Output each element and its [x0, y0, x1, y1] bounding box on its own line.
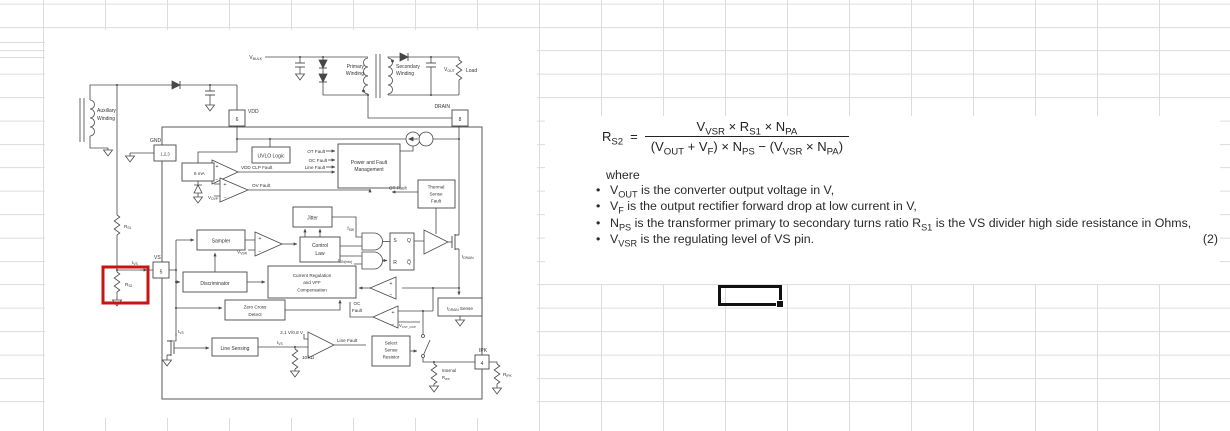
- block-control-law: [300, 237, 340, 262]
- embedded-diagram-image[interactable]: VBULK Primary Winding Secondary Winding …: [45, 30, 537, 418]
- svg-text:Winding: Winding: [346, 71, 364, 77]
- svg-text:Compensation: Compensation: [297, 288, 327, 293]
- svg-text:Sense: Sense: [429, 192, 442, 197]
- label-control: Control: [312, 243, 328, 249]
- label-idrain: IDRAIN: [462, 254, 474, 260]
- svg-text:Fault: Fault: [431, 199, 442, 204]
- svg-text:−: −: [259, 249, 262, 255]
- label-vdd: VDD: [248, 109, 259, 115]
- label-gnd: GND: [150, 138, 162, 144]
- label-pin123: 1,2,3: [160, 151, 170, 156]
- label-ipk: IPK: [479, 348, 488, 354]
- embedded-text-image[interactable]: RS2 = VVSR × RS1 × NPA (VOUT + VF) × NPS…: [545, 116, 1220, 284]
- svg-text:Management: Management: [354, 167, 384, 173]
- grid-row-divider: [0, 57, 45, 58]
- label-pfm: Power and Fault: [351, 160, 388, 166]
- label-line-fault: Line Fault: [305, 165, 326, 170]
- svg-text:Law: Law: [315, 251, 325, 257]
- label-r: R: [393, 260, 397, 266]
- svg-text:Resistor: Resistor: [383, 355, 400, 360]
- label-oc-fault: OC Fault: [309, 158, 328, 163]
- bullet-item: • VVSR is the regulating level of VS pin…: [595, 232, 1218, 248]
- junction-dots: [116, 56, 460, 363]
- block-zcd: [225, 300, 285, 320]
- bullet-text-vout: VOUT is the converter output voltage in …: [610, 183, 1218, 199]
- bullet-text-vf: VF is the output rectifier forward drop …: [610, 199, 1218, 215]
- bullet-item: • NPS is the transformer primary to seco…: [595, 216, 1218, 232]
- label-zcd: Zero Cross: [244, 305, 267, 310]
- label-pin6: 6: [236, 117, 239, 123]
- label-ocfault: OC: [354, 301, 362, 306]
- label-ivs-b: IVS: [178, 329, 184, 335]
- bullet-item: • VOUT is the converter output voltage i…: [595, 183, 1218, 199]
- equation-numerator: VVSR × RS1 × NPA: [645, 119, 849, 136]
- svg-text:+: +: [390, 281, 393, 287]
- label-ivs-a: IVS: [132, 260, 138, 266]
- svg-text:−: −: [392, 322, 395, 328]
- label-rs2: RS2: [125, 282, 133, 288]
- bullet-item: • VF is the output rectifier forward dro…: [595, 199, 1218, 215]
- svg-text:+: +: [259, 236, 262, 242]
- label-vddclp: VDD CLP Fault: [241, 165, 273, 170]
- label-fsw: fSW: [347, 226, 354, 232]
- label-internal-ripk: Internal: [442, 368, 456, 373]
- svg-text:+: +: [216, 164, 219, 170]
- block-power-fault: [338, 144, 400, 188]
- label-q: Q: [407, 238, 411, 244]
- label-vout: VOUT: [444, 67, 456, 73]
- label-line-fault2: Line Fault: [337, 338, 358, 343]
- bullet-text-vvsr: VVSR is the regulating level of VS pin.: [610, 232, 1195, 248]
- label-pin4: 4: [481, 361, 484, 367]
- svg-text:Winding: Winding: [396, 71, 414, 77]
- label-load: Load: [466, 68, 477, 74]
- label-pin8: 8: [459, 117, 462, 123]
- svg-text:+: +: [392, 310, 395, 316]
- equation: RS2 = VVSR × RS1 × NPA (VOUT + VF) × NPS…: [602, 119, 849, 154]
- label-secondary: Secondary: [396, 64, 420, 70]
- selected-cell[interactable]: [718, 285, 782, 306]
- equation-denominator: (VOUT + VF) × NPS − (VVSR × NPA): [645, 136, 849, 154]
- grid-row-divider: [0, 42, 45, 43]
- bullet-marker: •: [595, 199, 610, 215]
- bullet-marker: •: [595, 232, 610, 248]
- label-line-sensing: Line Sensing: [221, 346, 250, 352]
- label-6ma: 6 mA: [194, 171, 206, 176]
- label-vbulk: VBULK: [249, 55, 262, 61]
- label-pin5: 5: [160, 269, 163, 275]
- label-aux: Auxiliary: [97, 108, 116, 114]
- equals-sign: =: [630, 129, 638, 144]
- equation-number: (2): [1195, 232, 1218, 248]
- svg-text:Sense: Sense: [384, 348, 397, 353]
- label-jitter: Jitter: [307, 216, 318, 222]
- label-primary: Primary: [347, 64, 365, 70]
- label-discriminator: Discriminator: [200, 281, 230, 287]
- svg-text:−: −: [390, 292, 393, 298]
- label-select: Select: [385, 341, 398, 346]
- svg-text:RIPK: RIPK: [442, 375, 450, 381]
- where-label: where: [606, 168, 640, 182]
- label-ovfault: OV Fault: [252, 183, 271, 188]
- bullet-marker: •: [595, 183, 610, 199]
- label-vcstocp: VCST_OCP: [399, 323, 416, 329]
- fill-handle[interactable]: [776, 300, 784, 308]
- label-ivs-c: IVS: [277, 340, 283, 346]
- label-ripk: RIPK: [503, 372, 512, 378]
- block-diagram: VBULK Primary Winding Secondary Winding …: [45, 30, 537, 418]
- equation-fraction: VVSR × RS1 × NPA (VOUT + VF) × NPS − (VV…: [645, 119, 849, 154]
- label-ot-fault: OT Fault: [307, 149, 326, 154]
- bullet-list: • VOUT is the converter output voltage i…: [595, 183, 1218, 248]
- equation-lhs: RS2: [602, 129, 623, 144]
- svg-text:−: −: [216, 177, 219, 183]
- svg-text:+: +: [224, 182, 227, 188]
- svg-text:Winding: Winding: [97, 116, 115, 122]
- label-ot-fault2: OT Fault: [389, 186, 408, 191]
- svg-text:Detect: Detect: [248, 312, 262, 317]
- label-drain: DRAIN: [434, 104, 450, 110]
- svg-text:and VFF: and VFF: [303, 280, 321, 285]
- bullet-marker: •: [595, 216, 610, 232]
- label-vhys: 2.1 V/0.8 V: [280, 330, 304, 335]
- label-vs: VS: [154, 255, 161, 261]
- label-qbar: Q̅: [407, 259, 411, 266]
- bullet-text-nps: NPS is the transformer primary to second…: [610, 216, 1218, 232]
- svg-text:−: −: [224, 195, 227, 201]
- label-10k: 10 kΩ: [302, 355, 315, 360]
- label-uvlo: UVLO Logic: [258, 154, 285, 160]
- svg-text:Fault: Fault: [352, 308, 363, 313]
- label-sampler: Sampler: [212, 239, 231, 245]
- label-creg: Current Regulation: [293, 273, 332, 278]
- label-thermal: Thermal: [428, 185, 445, 190]
- label-rs1: RS1: [124, 224, 132, 230]
